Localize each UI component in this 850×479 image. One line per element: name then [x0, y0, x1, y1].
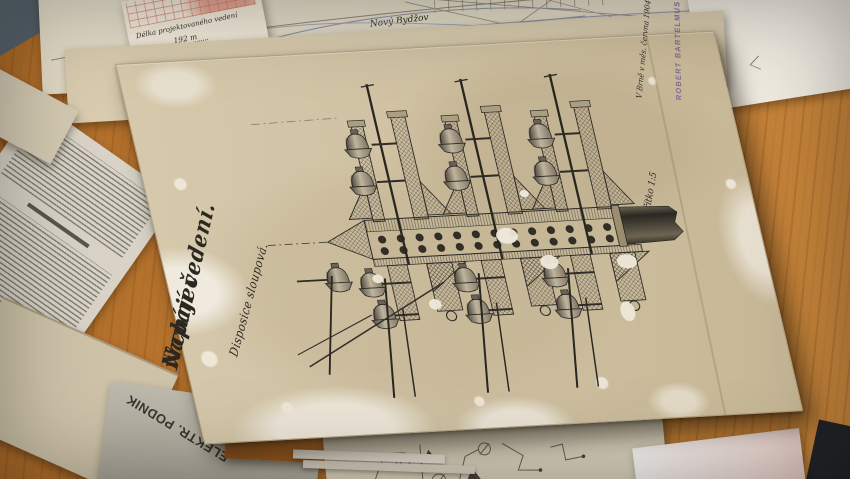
pencil-mark	[749, 56, 769, 70]
photo-scene: Nový Bydžov Délka projektovaného vedení …	[0, 0, 850, 479]
main-drawing-card: Napáječ pro vrchní vedení. Disposice slo…	[115, 31, 803, 445]
technical-drawing	[225, 60, 747, 403]
